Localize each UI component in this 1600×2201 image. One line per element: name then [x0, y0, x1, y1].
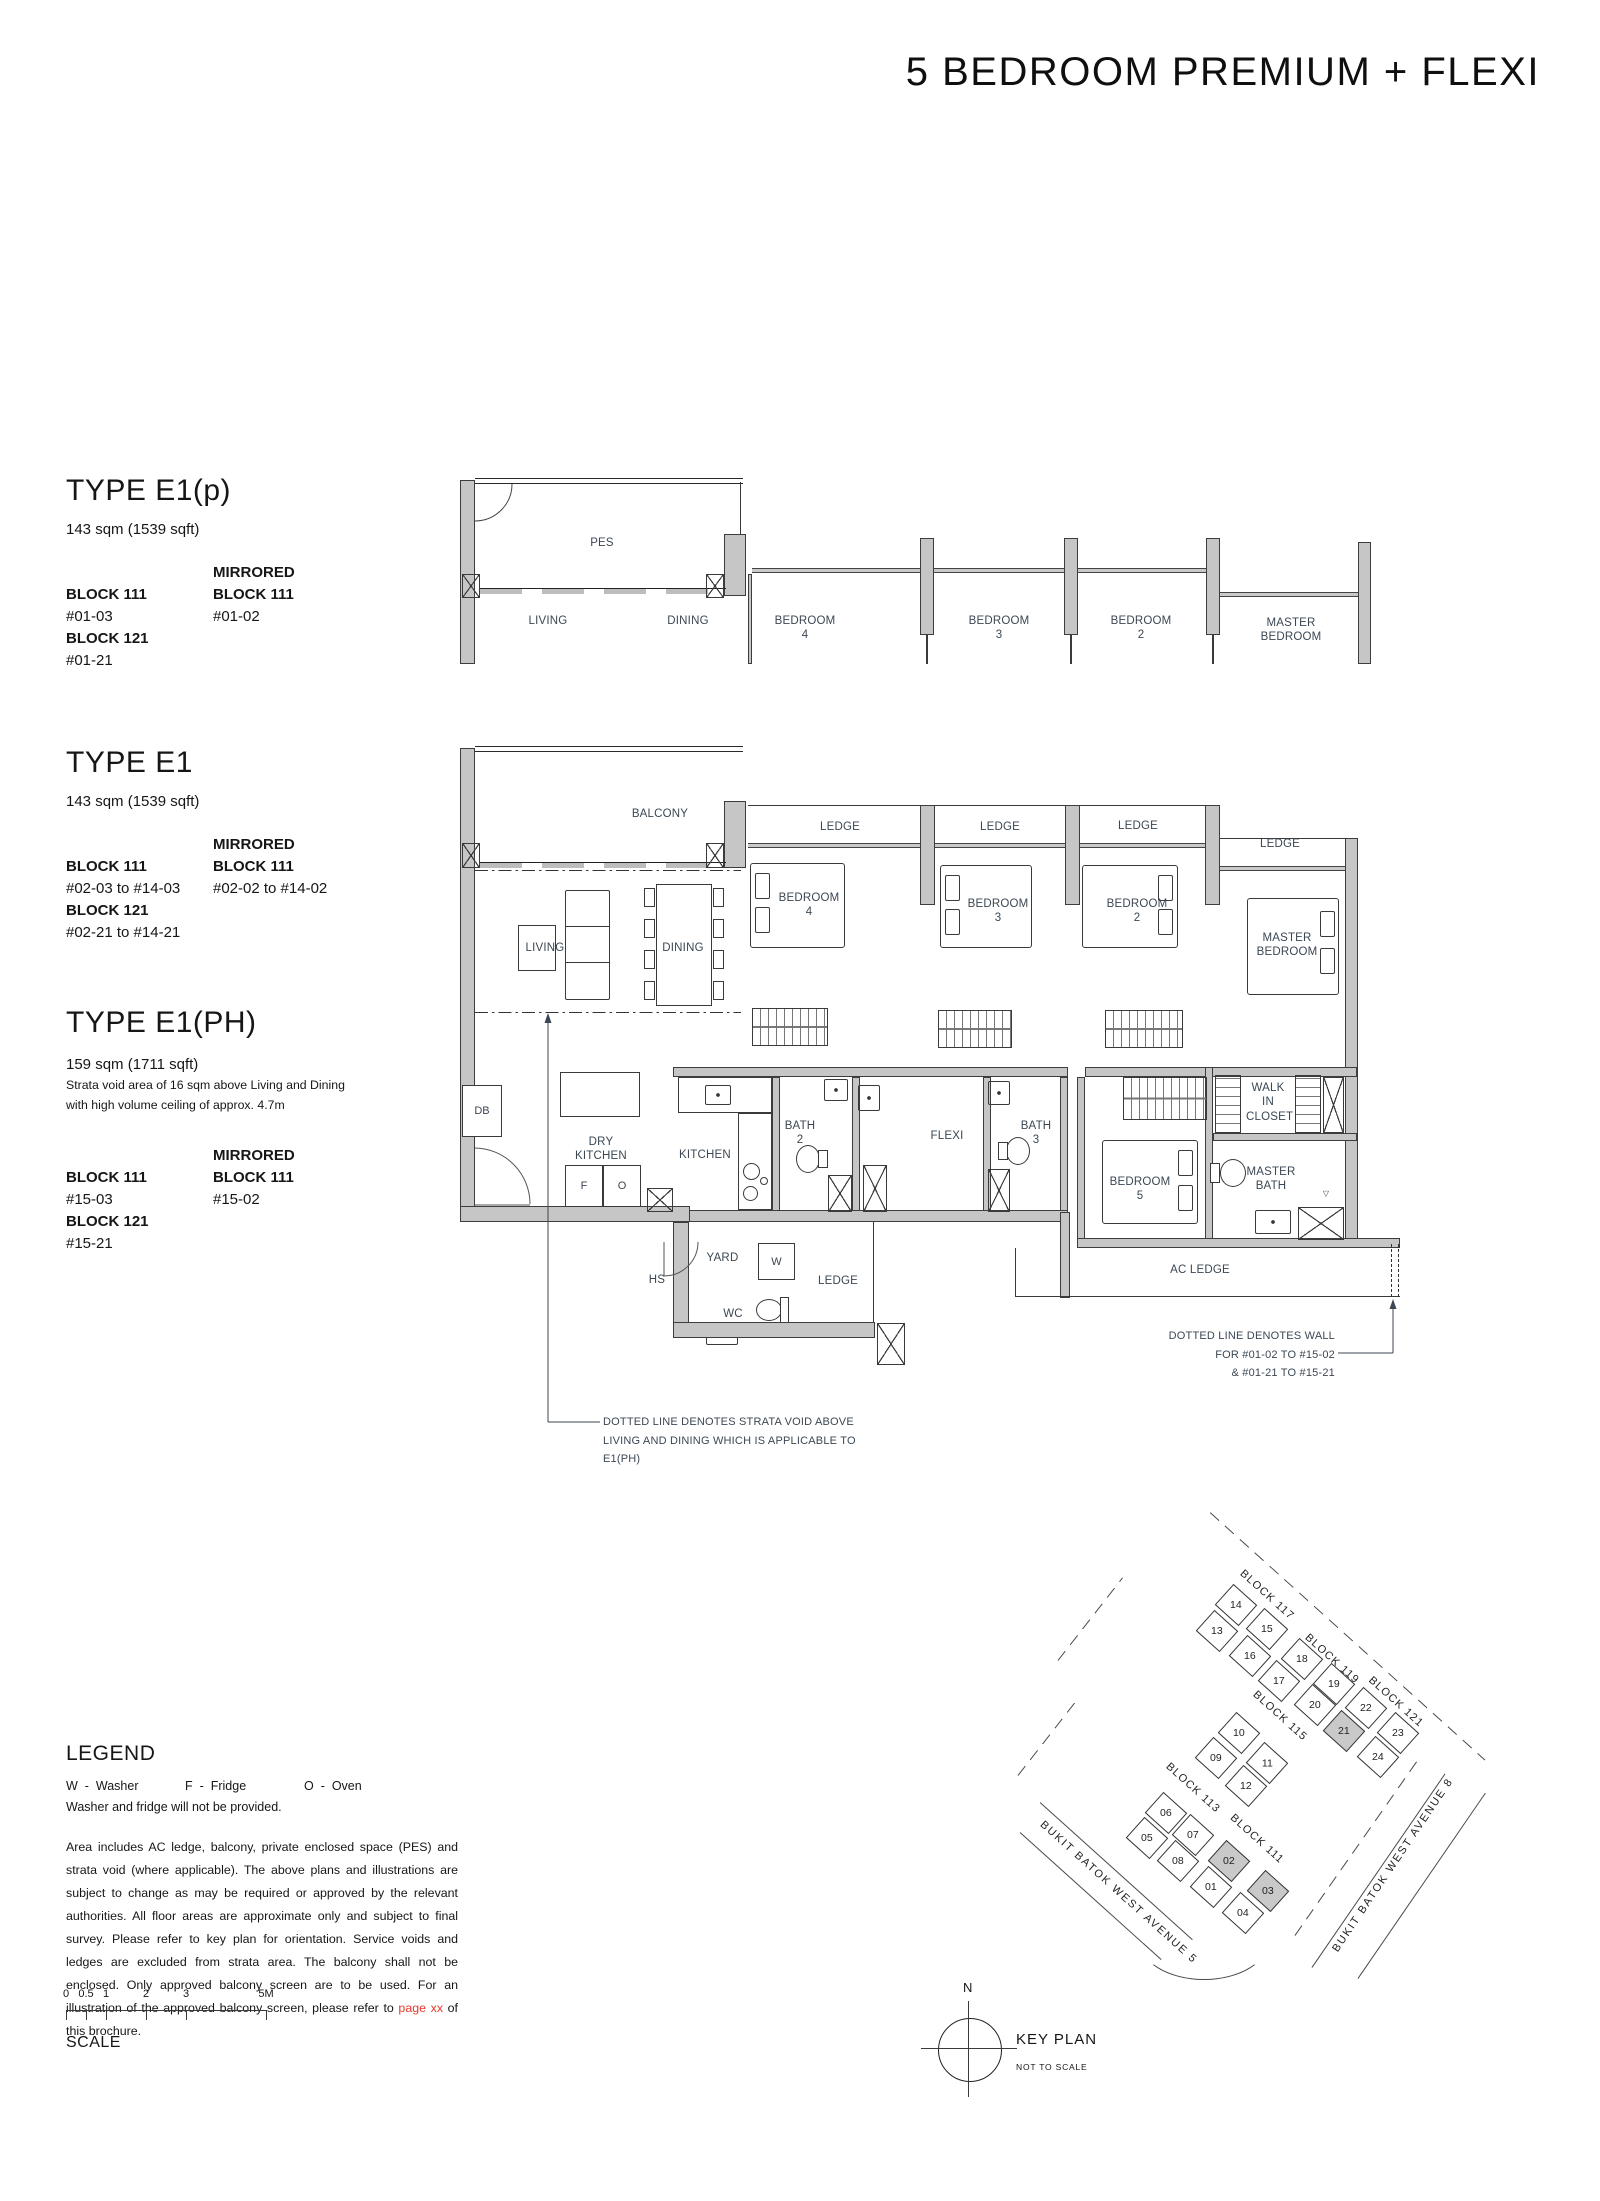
wall	[772, 1077, 780, 1212]
legend-label: Fridge	[211, 1779, 246, 1793]
scale-tick	[66, 2010, 67, 2020]
pillow	[1178, 1150, 1193, 1176]
wall	[926, 635, 928, 664]
strata-note: Strata void area of 16 sqm above Living …	[66, 1076, 396, 1115]
site-boundary-dashed	[1058, 1577, 1124, 1660]
legend-item-fridge: F - Fridge	[185, 1779, 304, 1793]
chair	[644, 919, 655, 938]
ledge-line	[934, 568, 1064, 573]
block-label: BLOCK 111	[66, 1167, 213, 1189]
scale-tick	[106, 2010, 107, 2020]
room-label-bedroom3: BEDROOM 3	[968, 614, 1030, 643]
wall	[1212, 635, 1214, 664]
room-label-walk-in-closet: WALK IN CLOSET	[1246, 1081, 1290, 1124]
type-area: 143 sqm (1539 sqft)	[66, 521, 396, 538]
ledge-label: LEDGE	[813, 1274, 863, 1288]
wardrobe	[1123, 1077, 1207, 1120]
ledge-line	[935, 843, 1065, 848]
washer-box: W	[758, 1243, 795, 1280]
type-e1ph-info: TYPE E1(PH) 159 sqm (1711 sqft) Strata v…	[66, 1008, 396, 1255]
oven-label: O	[618, 1180, 627, 1192]
fridge-label: F	[581, 1180, 588, 1192]
wall	[748, 574, 752, 664]
wall	[475, 478, 743, 484]
pillow	[945, 909, 960, 935]
column	[706, 574, 724, 598]
roof-edge	[748, 805, 920, 806]
room-label-bedroom5: BEDROOM 5	[1109, 1175, 1171, 1204]
shower	[1298, 1207, 1344, 1240]
wall	[1070, 635, 1072, 664]
strata-void-note-line1: DOTTED LINE DENOTES STRATA VOID ABOVE	[603, 1413, 883, 1432]
key-plan-subtitle: NOT TO SCALE	[1016, 2062, 1087, 2072]
ac-ledge-edge	[1015, 1296, 1400, 1297]
strata-void-note: DOTTED LINE DENOTES STRATA VOID ABOVE LI…	[603, 1413, 883, 1469]
wall	[673, 1322, 875, 1338]
legend-items: W - Washer F - Fridge O - Oven	[66, 1779, 458, 1793]
ledge-label: LEDGE	[970, 820, 1030, 834]
column	[462, 843, 480, 868]
pillow	[755, 873, 770, 899]
wall	[1077, 1238, 1400, 1248]
ledge-line	[1078, 568, 1206, 573]
sliding-door	[480, 588, 726, 594]
block-label: BLOCK 111	[213, 1167, 295, 1189]
washer-label: W	[771, 1256, 781, 1268]
wall	[724, 534, 746, 596]
room-label-bedroom2: BEDROOM 2	[1110, 614, 1172, 643]
ledge-label: LEDGE	[1108, 819, 1168, 833]
pillow	[945, 875, 960, 901]
toilet	[1220, 1159, 1246, 1187]
wardrobe	[1105, 1010, 1183, 1048]
chair	[644, 888, 655, 907]
room-label-bath2: BATH 2	[782, 1119, 818, 1148]
road-line	[1312, 1774, 1446, 1968]
legend-key: O	[304, 1779, 314, 1793]
wardrobe	[938, 1010, 1012, 1048]
toilet	[1210, 1163, 1220, 1183]
legend-label: Washer	[96, 1779, 139, 1793]
wall	[1077, 1077, 1085, 1248]
room-label-dry-kitchen: DRY KITCHEN	[570, 1135, 632, 1164]
pillow	[1320, 948, 1335, 974]
dotted-wall-note: DOTTED LINE DENOTES WALL FOR #01-02 TO #…	[1100, 1327, 1335, 1383]
legend-item-oven: O - Oven	[304, 1779, 423, 1793]
ledge-line	[1220, 866, 1345, 871]
ledge-label: LEDGE	[810, 820, 870, 834]
toilet	[818, 1150, 828, 1168]
unit-list-mirrored: MIRRORED BLOCK 111 #02-02 to #14-02	[213, 834, 327, 944]
unit-list: BLOCK 111 #02-03 to #14-03 BLOCK 121 #02…	[66, 834, 213, 944]
type-area: 143 sqm (1539 sqft)	[66, 793, 396, 810]
basin	[858, 1085, 880, 1111]
wall	[460, 748, 475, 1213]
strata-void-note-line2: LIVING AND DINING WHICH IS APPLICABLE TO…	[603, 1432, 883, 1469]
ledge-label: LEDGE	[1250, 837, 1310, 851]
toilet	[780, 1297, 789, 1323]
toilet	[998, 1142, 1008, 1160]
room-label-dining: DINING	[648, 614, 728, 628]
room-label-bedroom2: BEDROOM 2	[1106, 897, 1168, 926]
shaft	[877, 1323, 905, 1365]
room-label-hs: HS	[642, 1273, 672, 1287]
ac-ledge-edge	[1015, 1248, 1016, 1296]
type-e1p-info: TYPE E1(p) 143 sqm (1539 sqft) BLOCK 111…	[66, 476, 396, 672]
room-label-kitchen: KITCHEN	[674, 1148, 736, 1162]
room-label-flexi: FLEXI	[922, 1129, 972, 1143]
dotted-wall-note-line3: & #01-21 TO #15-21	[1100, 1364, 1335, 1383]
dotted-wall	[1391, 1244, 1399, 1297]
wall	[1065, 805, 1080, 905]
type-name: TYPE E1(PH)	[66, 1008, 396, 1038]
unit-list: BLOCK 111 #15-03 BLOCK 121 #15-21	[66, 1145, 213, 1255]
mirrored-label: MIRRORED	[213, 1145, 295, 1167]
chair	[644, 981, 655, 1000]
sliding-door	[480, 862, 726, 868]
kitchen-sink	[705, 1085, 731, 1105]
strata-note-line2: with high volume ceiling of approx. 4.7m	[66, 1096, 396, 1116]
scale-tick-label: 5M	[254, 1988, 278, 2000]
wall	[920, 805, 935, 905]
wall	[673, 1067, 1068, 1077]
legend-key: F	[185, 1779, 193, 1793]
shaft	[988, 1169, 1010, 1212]
room-label-master-bath: MASTER BATH	[1245, 1165, 1297, 1194]
oven-box: O	[603, 1165, 641, 1207]
service-void	[647, 1188, 673, 1212]
legend-sep: -	[85, 1779, 89, 1793]
unit-label: #15-21	[66, 1233, 213, 1255]
ac-ledge-label: AC LEDGE	[1155, 1263, 1245, 1277]
room-label-dining: DINING	[643, 941, 723, 955]
wall	[1206, 538, 1220, 635]
scale-tick	[146, 2010, 147, 2020]
wall	[1064, 538, 1078, 635]
block-label: BLOCK 121	[66, 900, 213, 922]
wall	[873, 1222, 874, 1322]
room-label-pes: PES	[552, 536, 652, 550]
basin	[824, 1079, 848, 1101]
unit-label: #01-03	[66, 606, 213, 628]
scale-tick-label: 2	[134, 1988, 158, 2000]
scale-label: SCALE	[66, 2034, 121, 2052]
room-label-bedroom4: BEDROOM 4	[778, 891, 840, 920]
wall	[1060, 1077, 1068, 1212]
site-boundary-dashed	[1018, 1700, 1077, 1776]
unit-label: #01-21	[66, 650, 213, 672]
scale-tick	[86, 2010, 87, 2020]
toilet	[1006, 1137, 1030, 1165]
wall	[1345, 838, 1358, 1243]
legend-note: Washer and fridge will not be provided.	[66, 1800, 458, 1814]
mirrored-label: MIRRORED	[213, 834, 327, 856]
type-name: TYPE E1	[66, 748, 396, 778]
page-xx-link[interactable]: page xx	[398, 2001, 443, 2015]
wall	[1205, 805, 1220, 905]
room-label-wc: WC	[718, 1307, 748, 1321]
wall	[475, 746, 743, 752]
room-label-living: LIVING	[508, 614, 588, 628]
block-label: BLOCK 111	[66, 584, 213, 606]
block-label: BLOCK 111	[66, 856, 213, 878]
chair	[713, 888, 724, 907]
key-plan-title: KEY PLAN	[1016, 2031, 1097, 2048]
basin	[988, 1081, 1010, 1105]
room-label-bedroom3: BEDROOM 3	[967, 897, 1029, 926]
wall	[460, 480, 475, 664]
shaft	[1323, 1077, 1344, 1133]
unit-label: #15-03	[66, 1189, 213, 1211]
legend-item-washer: W - Washer	[66, 1779, 185, 1793]
floorplan-e1-main: LEDGE LEDGE LEDGE LEDGE BEDROOM 4 BEDROO…	[460, 745, 1422, 1457]
pillow	[1178, 1185, 1193, 1211]
wall	[740, 482, 741, 534]
toilet	[796, 1145, 820, 1173]
pillow	[755, 907, 770, 933]
floorplan-e1p-strip: PES LIVING DINING BEDROOM 4 BEDROOM 3 BE…	[460, 476, 1372, 664]
db-label: DB	[474, 1105, 489, 1117]
roof-edge	[935, 805, 1065, 806]
basin	[1255, 1210, 1291, 1234]
wall	[673, 1222, 689, 1338]
type-name: TYPE E1(p)	[66, 476, 396, 506]
legend-label: Oven	[332, 1779, 362, 1793]
drain-marker-icon: ▽	[1318, 1189, 1334, 1199]
north-label: N	[963, 1980, 972, 1995]
unit-label: #01-02	[213, 606, 295, 628]
block-label: BLOCK 111	[213, 856, 327, 878]
page-title: 5 BEDROOM PREMIUM + FLEXI	[906, 50, 1540, 95]
unit-label: #15-02	[213, 1189, 295, 1211]
unit-list: BLOCK 111 #01-03 BLOCK 121 #01-21	[66, 562, 213, 672]
wall	[724, 801, 746, 868]
legend-sep: -	[200, 1779, 204, 1793]
dotted-wall-note-line1: DOTTED LINE DENOTES WALL	[1100, 1327, 1335, 1346]
unit-label: #02-03 to #14-03	[66, 878, 213, 900]
shaft	[863, 1165, 887, 1212]
type-e1-info: TYPE E1 143 sqm (1539 sqft) BLOCK 111 #0…	[66, 748, 396, 944]
ledge-line	[1220, 592, 1360, 597]
street-label-avenue5: BUKIT BATOK WEST AVENUE 5	[1038, 1819, 1195, 1962]
room-label-yard: YARD	[700, 1251, 745, 1265]
column	[706, 843, 724, 868]
brochure-page: { "page": { "title": "5 BEDROOM PREMIUM …	[0, 0, 1600, 2201]
shaft	[828, 1175, 852, 1212]
compass-axis	[968, 2001, 969, 2097]
room-label-balcony: BALCONY	[600, 807, 720, 821]
mirrored-label: MIRRORED	[213, 562, 295, 584]
legend-key: W	[66, 1779, 78, 1793]
wall	[1213, 1133, 1357, 1141]
island-counter	[560, 1072, 640, 1117]
legend-sep: -	[321, 1779, 325, 1793]
wall	[1358, 542, 1371, 664]
closet-shelf	[1215, 1075, 1241, 1133]
block-label: BLOCK 121	[66, 1211, 213, 1233]
scale-tick-label: 1	[94, 1988, 118, 2000]
pillow	[1320, 911, 1335, 937]
unit-label: #02-02 to #14-02	[213, 878, 327, 900]
scale-tick	[266, 2010, 267, 2020]
scale-tick	[186, 2010, 187, 2020]
room-label-living: LIVING	[505, 941, 585, 955]
disclaimer: Area includes AC ledge, balcony, private…	[66, 1836, 458, 2043]
ledge-line	[752, 568, 920, 573]
legend-title: LEGEND	[66, 1742, 458, 1766]
block-label: BLOCK 121	[66, 628, 213, 650]
scale-line	[66, 2010, 266, 2011]
wall	[1060, 1212, 1070, 1298]
compass-icon	[938, 2018, 1002, 2082]
stove-burner	[743, 1163, 760, 1180]
db-box: DB	[462, 1085, 502, 1137]
ledge-line	[748, 843, 920, 848]
closet-shelf	[1295, 1075, 1321, 1133]
wall	[920, 538, 934, 635]
toilet	[756, 1299, 782, 1321]
unit-list-mirrored: MIRRORED BLOCK 111 #15-02	[213, 1145, 295, 1255]
block-label: BLOCK 111	[213, 584, 295, 606]
unit-list-mirrored: MIRRORED BLOCK 111 #01-02	[213, 562, 295, 672]
key-plan: BLOCK 117 BLOCK 119 BLOCK 121 BLOCK 115 …	[1010, 1520, 1500, 1980]
wardrobe	[752, 1008, 828, 1046]
scale-tick-label: 3	[174, 1988, 198, 2000]
roof-edge	[1080, 805, 1205, 806]
chair	[713, 981, 724, 1000]
fridge-box: F	[565, 1165, 603, 1207]
room-label-bedroom4: BEDROOM 4	[774, 614, 836, 643]
room-label-master-bedroom: MASTER BEDROOM	[1255, 616, 1327, 645]
strata-note-line1: Strata void area of 16 sqm above Living …	[66, 1076, 396, 1096]
dotted-wall-note-line2: FOR #01-02 TO #15-02	[1100, 1346, 1335, 1365]
stove-burner	[760, 1177, 768, 1185]
unit-label: #02-21 to #14-21	[66, 922, 213, 944]
ledge-line	[1080, 843, 1205, 848]
column	[462, 574, 480, 598]
room-label-master-bedroom: MASTER BEDROOM	[1252, 931, 1322, 960]
type-area: 159 sqm (1711 sqft)	[66, 1056, 396, 1073]
chair	[713, 919, 724, 938]
stove-burner	[743, 1186, 758, 1201]
